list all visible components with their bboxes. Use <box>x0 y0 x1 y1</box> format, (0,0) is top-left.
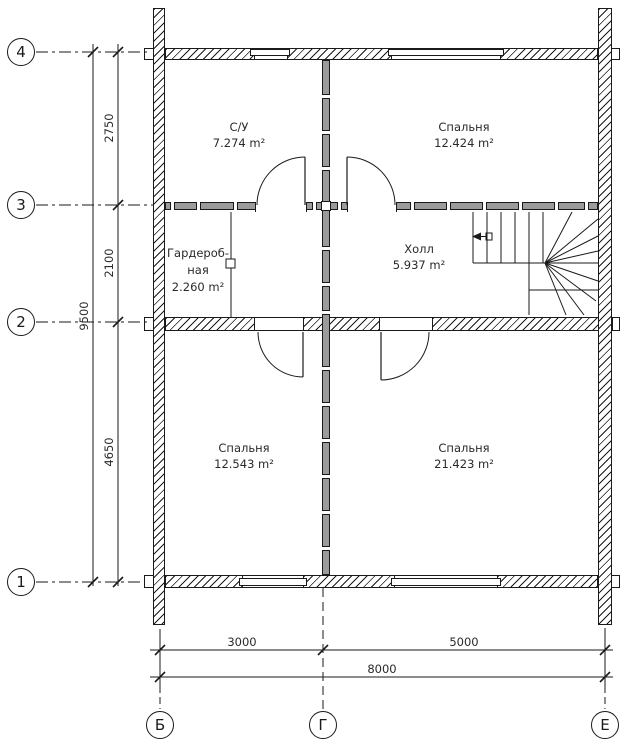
room-name: Спальня <box>409 119 519 135</box>
axis-bubble-g: Г <box>309 711 337 739</box>
window <box>239 578 307 586</box>
room-area: 5.937 m² <box>364 257 474 273</box>
door-bedroom-topright <box>347 157 395 205</box>
door-bedroom-bottomleft <box>258 332 303 377</box>
room-name: С/У <box>184 119 294 135</box>
axis-bubble-4: 4 <box>7 38 35 66</box>
room-area: 21.423 m² <box>409 456 519 472</box>
room-name: ная <box>143 262 253 279</box>
axis-bubble-2: 2 <box>7 308 35 336</box>
wall-joint <box>321 201 331 211</box>
wall-segment <box>303 576 395 587</box>
wall-center <box>322 60 330 575</box>
wall-right <box>598 8 612 625</box>
wall-segment <box>165 49 255 59</box>
wall-left <box>153 8 165 625</box>
room-area: 7.274 m² <box>184 135 294 151</box>
wall-segment <box>303 318 380 330</box>
wall-top <box>144 48 620 60</box>
window <box>388 49 504 56</box>
room-name: Спальня <box>189 440 299 456</box>
dim-2100: 2100 <box>102 233 116 293</box>
door-bedroom-bottomright <box>381 332 429 380</box>
room-label-wardrobe: Гардероб- ная 2.260 m² <box>143 245 253 296</box>
room-area: 12.543 m² <box>189 456 299 472</box>
wall-axis2 <box>144 317 620 331</box>
dim-3000: 3000 <box>212 635 272 649</box>
room-area: 12.424 m² <box>409 135 519 151</box>
room-label-su: С/У 7.274 m² <box>184 119 294 151</box>
wall-segment <box>165 318 255 330</box>
window <box>391 578 501 586</box>
dim-5000: 5000 <box>434 635 494 649</box>
room-label-hall: Холл 5.937 m² <box>364 241 474 273</box>
dim-4650: 4650 <box>102 422 116 482</box>
room-name: Спальня <box>409 440 519 456</box>
room-label-bedroom-bottomright: Спальня 21.423 m² <box>409 440 519 472</box>
staircase <box>473 212 598 315</box>
door-opening <box>255 202 307 212</box>
door-su <box>257 157 305 205</box>
wall-segment <box>287 49 392 59</box>
room-name: Холл <box>364 241 474 257</box>
wall-segment <box>500 49 598 59</box>
floor-plan: С/У 7.274 m² Спальня 12.424 m² Гардероб-… <box>0 0 640 747</box>
window <box>250 49 290 56</box>
dim-2750: 2750 <box>102 98 116 158</box>
room-label-bedroom-bottomleft: Спальня 12.543 m² <box>189 440 299 472</box>
axis-lines-horizontal <box>36 52 153 582</box>
wall-segment <box>497 576 598 587</box>
dim-8000: 8000 <box>352 662 412 676</box>
axis-bubble-e: Е <box>591 711 619 739</box>
dim-9500: 9500 <box>77 286 91 346</box>
wall-segment <box>432 318 613 330</box>
axis-bubble-3: 3 <box>7 191 35 219</box>
room-area: 2.260 m² <box>143 279 253 296</box>
wall-axis3 <box>165 202 598 210</box>
axis-bubble-1: 1 <box>7 568 35 596</box>
wall-segment <box>165 576 243 587</box>
room-label-bedroom-topright: Спальня 12.424 m² <box>409 119 519 151</box>
room-name: Гардероб- <box>143 245 253 262</box>
wall-bottom <box>144 575 620 588</box>
axis-bubble-b: Б <box>146 711 174 739</box>
stair-direction-arrow-icon <box>472 233 492 241</box>
door-opening <box>347 202 397 212</box>
plan-drawing-layer <box>0 0 640 747</box>
